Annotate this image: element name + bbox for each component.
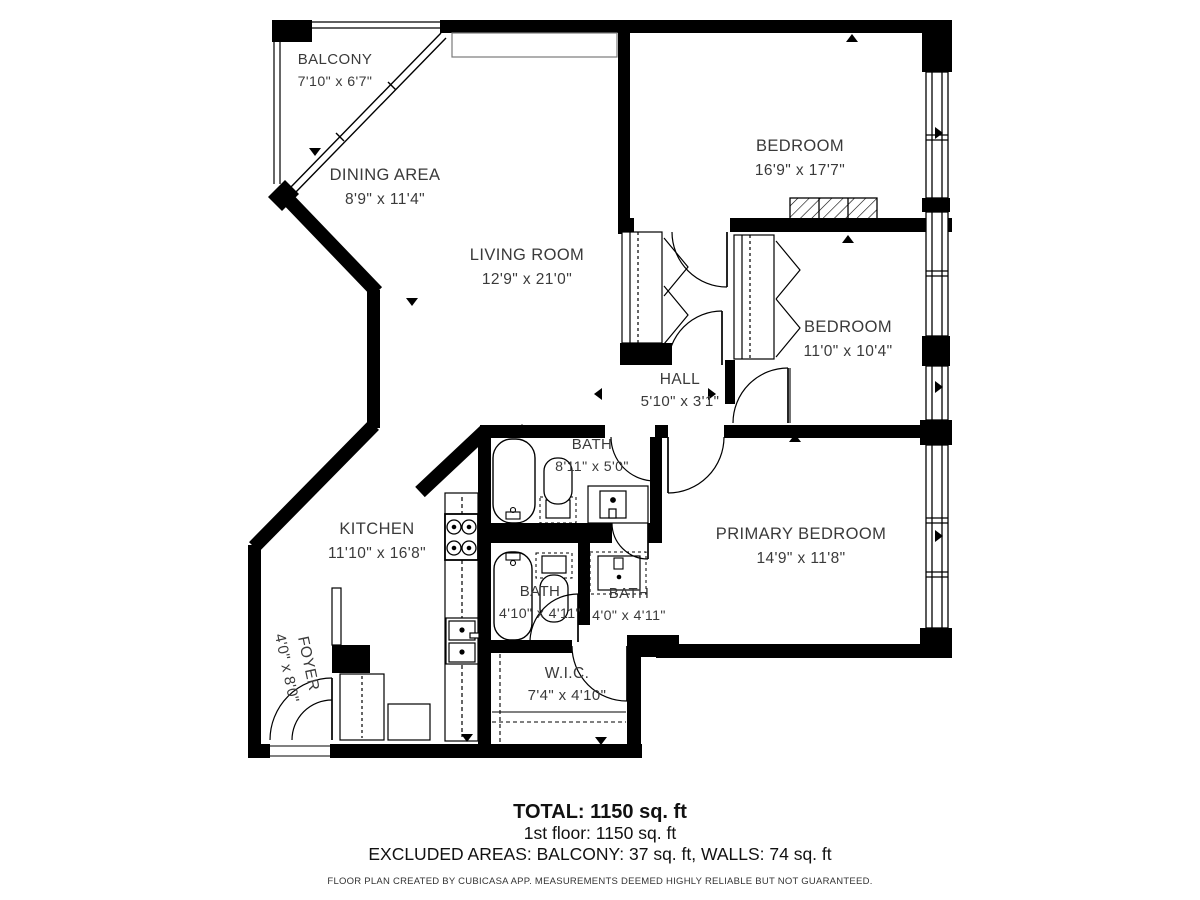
room-label-hall: HALL 5'10" x 3'1" (641, 368, 720, 414)
room-label-balcony: BALCONY 7'10" x 6'7" (298, 49, 373, 93)
room-label-bath1: BATH 8'11" x 5'0" (555, 434, 629, 478)
room-label-bedroom1: BEDROOM 16'9" x 17'7" (755, 134, 845, 182)
room-label-dining: DINING AREA 8'9" x 11'4" (330, 163, 441, 211)
walls (248, 20, 952, 758)
bedroom1-door (672, 232, 727, 287)
kitchen-sink-icon (446, 618, 479, 664)
hall-closet (622, 232, 688, 344)
room-label-bath2: BATH 4'10" x 4'11" (499, 581, 581, 625)
floor-plan-page: BALCONY 7'10" x 6'7" DINING AREA 8'9" x … (0, 0, 1200, 900)
living-room-builtin (452, 33, 617, 57)
room-label-bath3: BATH 4'0" x 4'11" (592, 583, 666, 627)
balcony-railing (274, 22, 444, 184)
entry-threshold (270, 744, 330, 758)
bath3-door (612, 523, 648, 559)
stove-icon (445, 514, 478, 560)
hall-nook-door (668, 311, 722, 365)
excluded-areas-line: EXCLUDED AREAS: BALCONY: 37 sq. ft, WALL… (0, 844, 1200, 865)
room-label-wic: W.I.C. 7'4" x 4'10" (528, 662, 607, 708)
disclaimer-line: FLOOR PLAN CREATED BY CUBICASA APP. MEAS… (0, 876, 1200, 887)
first-floor-line: 1st floor: 1150 sq. ft (0, 823, 1200, 844)
primary-bedroom-door (668, 437, 724, 493)
bedroom2-door (733, 368, 788, 423)
total-area-line: TOTAL: 1150 sq. ft (0, 801, 1200, 823)
bathtub-icon (493, 439, 535, 523)
bedroom1-closet-hatched (790, 198, 877, 226)
room-label-kitchen: KITCHEN 11'10" x 16'8" (328, 517, 426, 565)
room-label-bedroom2: BEDROOM 11'0" x 10'4" (803, 315, 892, 363)
vanity-sink-icon (588, 486, 648, 523)
bedroom2-closet (734, 235, 800, 359)
room-label-living: LIVING ROOM 12'9" x 21'0" (470, 243, 584, 291)
room-label-primary-bedroom: PRIMARY BEDROOM 14'9" x 11'8" (716, 522, 886, 570)
area-summary: TOTAL: 1150 sq. ft 1st floor: 1150 sq. f… (0, 801, 1200, 887)
